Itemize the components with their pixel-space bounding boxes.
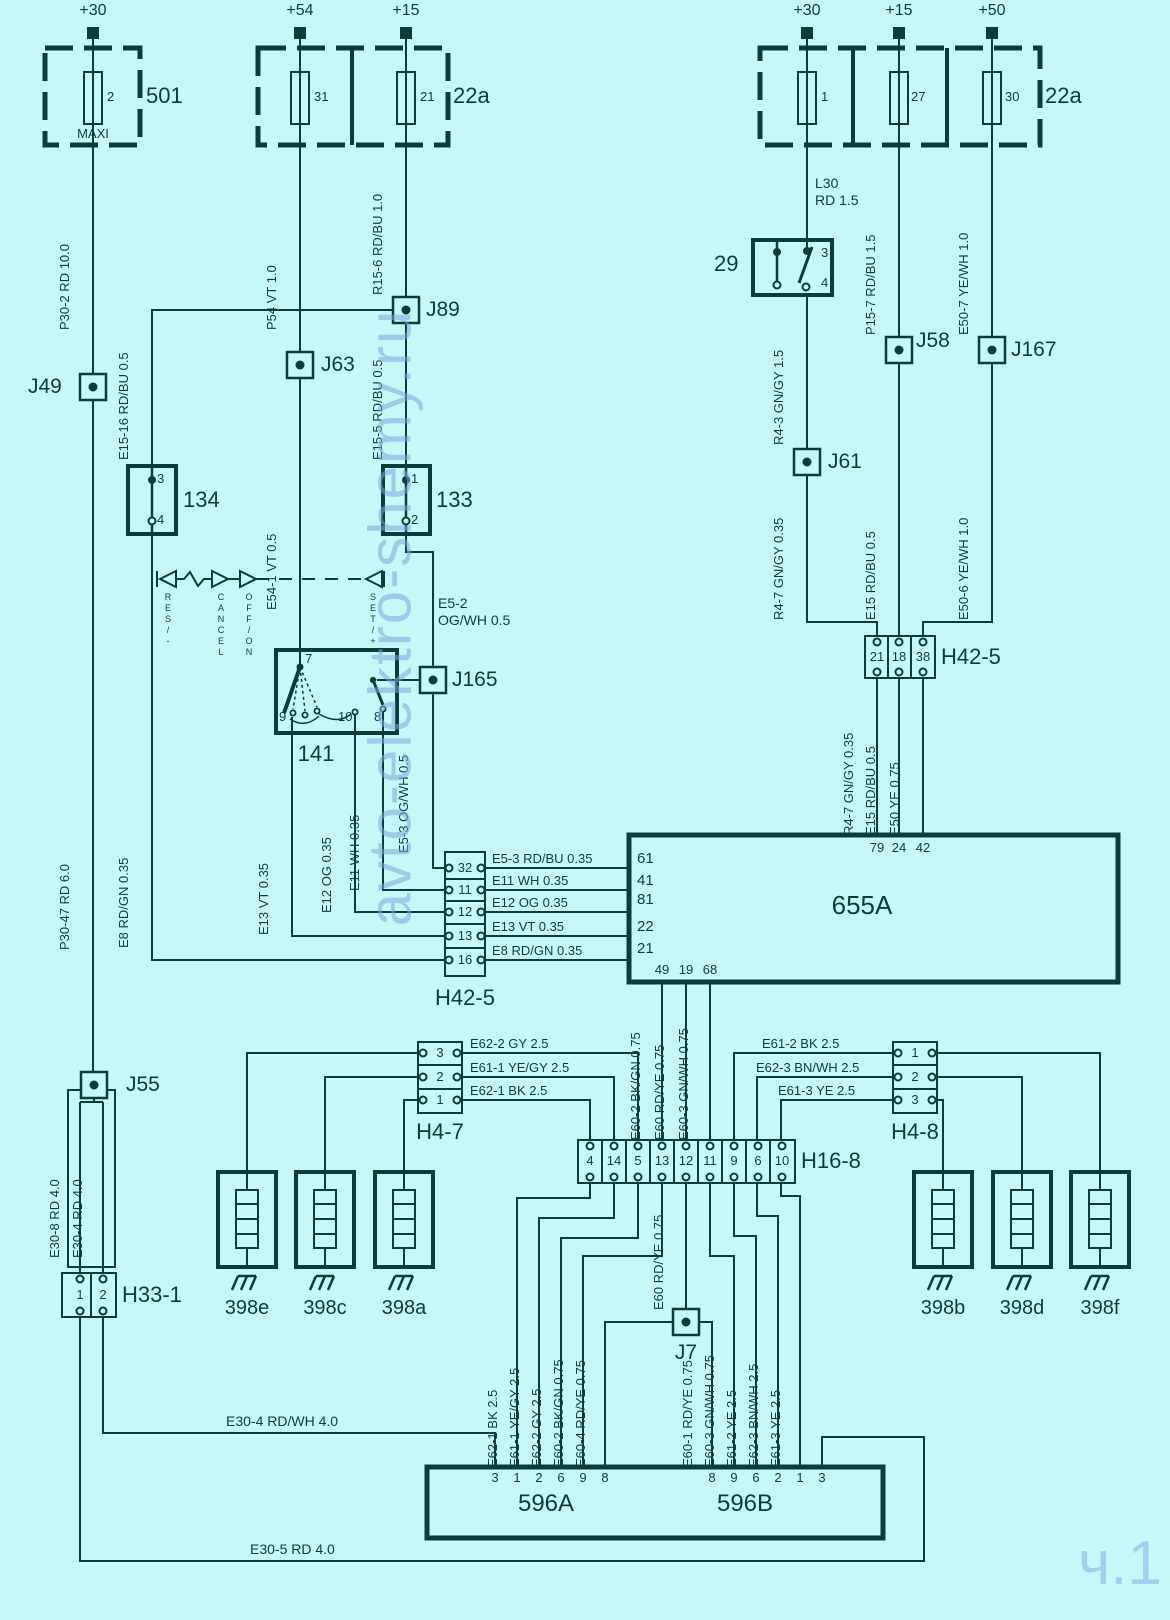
h4-8-id: H4-8 (891, 1120, 939, 1143)
switch-141-pin10: 10 (338, 710, 352, 724)
ecu-pin-81: 81 (637, 893, 654, 907)
h168-pin-5: 5 (634, 1154, 641, 1168)
h331-pin-1: 1 (76, 1288, 83, 1302)
supply-15-left: +15 (392, 2, 419, 19)
supply-30-left: +30 (79, 2, 106, 19)
watermark-part: ч.1 (1078, 1528, 1162, 1599)
label-398f: 398f (1081, 1297, 1120, 1320)
switch-141-pin7: 7 (305, 652, 312, 666)
wire-e15-16: E15-16 RD/BU 0.5 (116, 352, 131, 460)
ecu-pin-22: 22 (637, 920, 654, 934)
junction-j58 (886, 337, 912, 363)
wire-e8: E8 RD/GN 0.35 (116, 858, 131, 948)
ecu-pin-21: 21 (637, 942, 654, 956)
m596a-pin-8: 8 (601, 1471, 608, 1485)
h42l-pin-12: 12 (458, 905, 472, 919)
watermark-site: avto-elektro-shemy.ru (356, 293, 425, 943)
col-e60-3: E60-3 GN/WH 0.75 (702, 1355, 717, 1467)
row-e61-1: E61-1 YE/GY 2.5 (470, 1060, 569, 1075)
stalk-pos-res: RES/- (163, 592, 173, 647)
fuse-maxi-label: MAXI (63, 127, 123, 141)
wire-e54-1: E54-1 VT 0.5 (264, 534, 279, 610)
m596a-pin-9: 9 (579, 1471, 586, 1485)
wire-e30-5: E30-5 RD 4.0 (250, 1542, 335, 1557)
fuse-1-label: 1 (821, 90, 828, 104)
m596b-pin-6: 6 (752, 1471, 759, 1485)
col-e60-2: E60-2 BK/GN 0.75 (551, 1359, 566, 1467)
switch-133-id: 133 (436, 488, 473, 511)
wire-l30-name: L30 (815, 176, 838, 191)
j55-label: J55 (126, 1074, 160, 1096)
wire-e30-4-inner: E30-4 RD 4.0 (70, 1179, 85, 1258)
fusebox-22a-right-id: 22a (1045, 84, 1082, 107)
wire-e30-4: E30-4 RD/WH 4.0 (226, 1414, 338, 1429)
junction-j61 (794, 449, 820, 475)
h48-pin-1: 1 (911, 1046, 918, 1060)
wire-e60-3: E60-3 GN/WH 0.75 (676, 1028, 691, 1140)
h16-8-id: H16-8 (801, 1149, 861, 1172)
label-398c: 398c (303, 1297, 346, 1320)
junction-j167 (979, 337, 1005, 363)
row-e62-3: E62-3 BN/WH 2.5 (756, 1060, 859, 1075)
ecu-pin-41: 41 (637, 874, 654, 888)
label-398a: 398a (382, 1297, 427, 1320)
wire-r4-7-b: R4-7 GN/GY 0.35 (841, 733, 856, 835)
relay-29-id: 29 (714, 252, 738, 275)
unit-398d (993, 1172, 1051, 1290)
supply-54: +54 (286, 2, 313, 19)
m596a-pin-2: 2 (535, 1471, 542, 1485)
supply-50: +50 (978, 2, 1005, 19)
wire-e50: E50 YE 0.75 (887, 762, 902, 835)
h168-pin-10: 10 (775, 1154, 789, 1168)
module-596a-id: 596A (518, 1490, 574, 1518)
j61-label: J61 (828, 451, 862, 473)
h42-5-left-id: H42-5 (435, 986, 495, 1009)
wire-e5-2-name: E5-2 (438, 596, 468, 611)
row-e62-1: E62-1 BK 2.5 (470, 1083, 547, 1098)
ecu-pin-68: 68 (703, 963, 717, 977)
m596b-pin-1: 1 (796, 1471, 803, 1485)
junction-j63 (287, 352, 313, 378)
switch-141-pin9: 9 (279, 710, 286, 724)
ecu-655a-id: 655A (832, 890, 893, 921)
unit-398e (218, 1172, 276, 1290)
h42-5-right-id: H42-5 (941, 645, 1001, 668)
row-e5-3: E5-3 RD/BU 0.35 (492, 851, 592, 866)
h42r-pin-38: 38 (916, 650, 930, 664)
wire-r4-3: R4-3 GN/GY 1.5 (771, 350, 786, 445)
fuse-31-label: 31 (314, 90, 328, 104)
junction-j49 (80, 374, 106, 400)
ecu-pin-49: 49 (655, 963, 669, 977)
m596b-pin-9: 9 (730, 1471, 737, 1485)
j58-label: J58 (916, 330, 950, 352)
fusebox-501-id: 501 (146, 84, 183, 107)
j165-label: J165 (452, 669, 498, 691)
fuse-30-label: 30 (1005, 90, 1019, 104)
row-e61-2: E61-2 BK 2.5 (762, 1036, 839, 1051)
wire-e15-b: E15 RD/BU 0.5 (863, 746, 878, 835)
col-e60-1: E60-1 RD/YE 0.75 (680, 1360, 695, 1467)
relay-29-pin4: 4 (821, 276, 828, 290)
wiring-diagram-page: +30 +54 +15 +30 +15 +50 2 MAXI 501 31 21… (0, 0, 1170, 1620)
m596b-pin-3: 3 (818, 1471, 825, 1485)
wire-r4-7: R4-7 GN/GY 0.35 (771, 518, 786, 620)
fuse-boxes (45, 48, 1040, 145)
h42l-pin-11: 11 (458, 883, 472, 897)
j167-label: J167 (1011, 339, 1057, 361)
fusebox-22a-left-id: 22a (453, 84, 490, 107)
switch-134-pin3: 3 (157, 472, 164, 486)
col-e61-3: E61-3 YE 2.5 (768, 1390, 783, 1467)
label-398b: 398b (921, 1297, 966, 1320)
switch-141-id: 141 (298, 742, 335, 765)
wire-e50-7: E50-7 YE/WH 1.0 (956, 233, 971, 335)
h168-pin-9: 9 (730, 1154, 737, 1168)
ecu-pin-19: 19 (679, 963, 693, 977)
module-596b-id: 596B (717, 1490, 773, 1518)
h331-pin-2: 2 (99, 1288, 106, 1302)
col-e62-2: E62-2 GY 2.5 (529, 1388, 544, 1467)
supply-terminals (87, 27, 998, 39)
m596a-pin-1: 1 (513, 1471, 520, 1485)
resistor-units (218, 1172, 1129, 1290)
row-e62-2: E62-2 GY 2.5 (470, 1036, 549, 1051)
junction-j55 (81, 1072, 107, 1098)
h33-1-id: H33-1 (122, 1283, 182, 1306)
h47-pin-1: 1 (436, 1093, 443, 1107)
junction-j7 (673, 1309, 699, 1335)
j63-label: J63 (321, 354, 355, 376)
switch-134-id: 134 (183, 488, 220, 511)
row-e12: E12 OG 0.35 (492, 895, 568, 910)
wire-e15-a: E15 RD/BU 0.5 (863, 531, 878, 620)
h42l-pin-13: 13 (458, 929, 472, 943)
unit-398a (375, 1172, 433, 1290)
ecu-pin-24: 24 (892, 841, 906, 855)
m596a-pin-3: 3 (491, 1471, 498, 1485)
wire-p30-47: P30-47 RD 6.0 (57, 864, 72, 950)
wire-p15-7: P15-7 RD/BU 1.5 (863, 235, 878, 335)
label-398e: 398e (225, 1297, 270, 1320)
h168-pin-6: 6 (754, 1154, 761, 1168)
ecu-pin-61: 61 (637, 852, 654, 866)
row-e11: E11 WH 0.35 (492, 873, 568, 888)
label-398d: 398d (1000, 1297, 1045, 1320)
supply-15-right: +15 (885, 2, 912, 19)
wire-e5-2-spec: OG/WH 0.5 (438, 613, 510, 628)
h168-pin-11: 11 (703, 1154, 717, 1168)
wire-e60-2: E60-2 BK/GN 0.75 (628, 1032, 643, 1140)
stalk-pos-offon: OFF/ON (244, 592, 254, 658)
wire-e13: E13 VT 0.35 (256, 863, 271, 935)
unit-398f (1071, 1172, 1129, 1290)
supply-30-right: +30 (793, 2, 820, 19)
m596a-pin-6: 6 (557, 1471, 564, 1485)
unit-398b (914, 1172, 972, 1290)
switch-134 (128, 466, 176, 534)
h47-pin-2: 2 (436, 1070, 443, 1084)
col-e62-3: E62-3 BN/WH 2.5 (746, 1364, 761, 1467)
col-e61-1: E61-1 YE/GY 2.5 (507, 1368, 522, 1467)
wire-p30-2: P30-2 RD 10.0 (57, 244, 72, 330)
h168-pin-4: 4 (586, 1154, 593, 1168)
h47-pin-3: 3 (436, 1046, 443, 1060)
ecu-pin-42: 42 (916, 841, 930, 855)
fuse-2-label: 2 (107, 90, 114, 104)
wire-e30-8: E30-8 RD 4.0 (47, 1179, 62, 1258)
relay-29-pin3: 3 (821, 246, 828, 260)
col-e60-4: E60-4 RD/YE 0.75 (573, 1360, 588, 1467)
wires (80, 39, 1100, 1561)
h48-pin-2: 2 (911, 1070, 918, 1084)
connector-h33-1 (62, 1273, 116, 1317)
row-e8: E8 RD/GN 0.35 (492, 943, 582, 958)
unit-398c (296, 1172, 354, 1290)
h4-7-id: H4-7 (416, 1120, 464, 1143)
h168-pin-12: 12 (679, 1154, 693, 1168)
j49-label: J49 (28, 376, 62, 398)
fuse-21-label: 21 (420, 90, 434, 104)
h168-pin-14: 14 (607, 1154, 621, 1168)
h42r-pin-18: 18 (892, 650, 906, 664)
row-e13: E13 VT 0.35 (492, 919, 564, 934)
wire-e60: E60 RD/YE 0.75 (652, 1045, 667, 1140)
fuse-27-label: 27 (911, 90, 925, 104)
col-e61-2: E61-2 YE 2.5 (724, 1390, 739, 1467)
m596b-pin-2: 2 (774, 1471, 781, 1485)
h42r-pin-21: 21 (870, 650, 884, 664)
wire-e12: E12 OG 0.35 (319, 837, 334, 913)
wire-p54: P54 VT 1.0 (264, 265, 279, 330)
m596b-pin-8: 8 (708, 1471, 715, 1485)
fuse-elements (84, 72, 1001, 124)
col-e62-1: E62-1 BK 2.5 (485, 1390, 500, 1467)
row-e61-3: E61-3 YE 2.5 (778, 1083, 855, 1098)
stalk-pos-cancel: CANCEL (216, 592, 226, 658)
h42l-pin-32: 32 (458, 861, 472, 875)
wire-r15-6: R15-6 RD/BU 1.0 (370, 194, 385, 295)
j89-label: J89 (426, 299, 460, 321)
h168-pin-13: 13 (655, 1154, 669, 1168)
switch-134-pin4: 4 (157, 513, 164, 527)
h48-pin-3: 3 (911, 1093, 918, 1107)
ecu-pin-79: 79 (870, 841, 884, 855)
h42l-pin-16: 16 (458, 953, 472, 967)
wire-e50-6: E50-6 YE/WH 1.0 (956, 518, 971, 620)
wire-e60-mid: E60 RD/YE 0.75 (651, 1215, 666, 1310)
wire-l30-spec: RD 1.5 (815, 193, 859, 208)
